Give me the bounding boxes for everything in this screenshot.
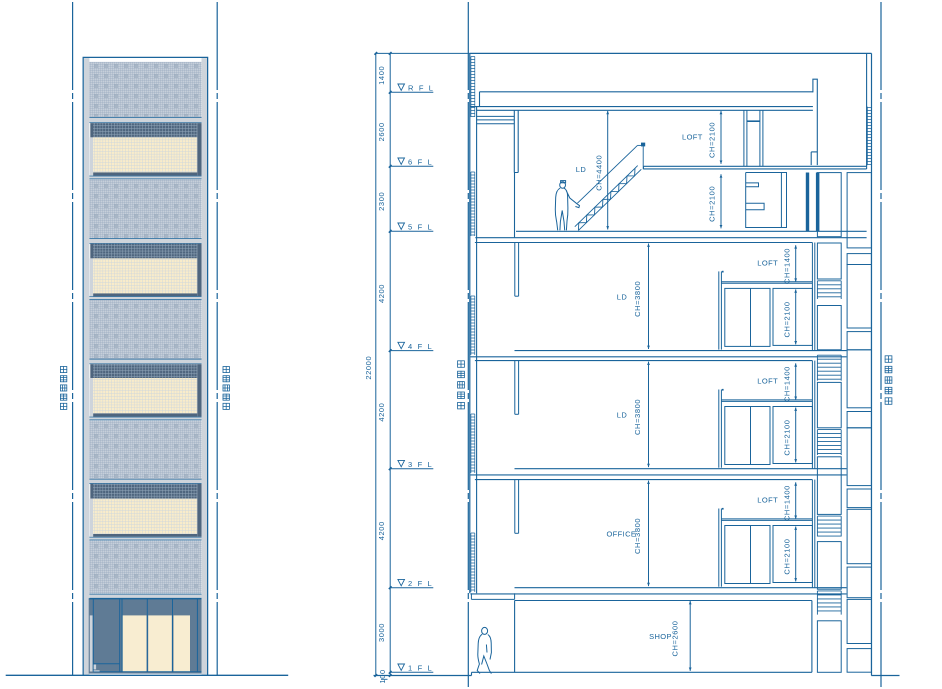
svg-text:1400: 1400 bbox=[377, 66, 386, 85]
svg-text:CH=2100: CH=2100 bbox=[782, 419, 791, 455]
svg-text:CH=2600: CH=2600 bbox=[670, 620, 679, 656]
svg-text:LOFT: LOFT bbox=[682, 133, 703, 142]
svg-text:LD: LD bbox=[576, 165, 587, 174]
svg-text:4200: 4200 bbox=[377, 403, 386, 422]
svg-text:LD: LD bbox=[617, 411, 628, 420]
svg-text:LOFT: LOFT bbox=[757, 496, 778, 505]
svg-text:4FL: 4FL bbox=[408, 342, 437, 351]
svg-text:5FL: 5FL bbox=[408, 223, 437, 232]
svg-text:CH=2100: CH=2100 bbox=[708, 186, 717, 222]
svg-text:4200: 4200 bbox=[377, 284, 386, 303]
svg-text:3000: 3000 bbox=[377, 623, 386, 642]
svg-text:CH=2100: CH=2100 bbox=[708, 122, 717, 158]
svg-text:2FL: 2FL bbox=[408, 579, 437, 588]
svg-text:3FL: 3FL bbox=[408, 460, 437, 469]
svg-text:100: 100 bbox=[378, 669, 387, 683]
svg-text:4200: 4200 bbox=[377, 521, 386, 540]
svg-text:CH=1400: CH=1400 bbox=[782, 366, 791, 402]
svg-text:CH=3800: CH=3800 bbox=[633, 518, 642, 554]
svg-text:CH=4400: CH=4400 bbox=[594, 155, 603, 191]
svg-text:LD: LD bbox=[617, 292, 628, 301]
svg-text:CH=2100: CH=2100 bbox=[782, 301, 791, 337]
svg-text:LOFT: LOFT bbox=[757, 258, 778, 267]
svg-text:CH=3800: CH=3800 bbox=[633, 399, 642, 435]
svg-text:1FL: 1FL bbox=[408, 664, 437, 673]
svg-text:RFL: RFL bbox=[408, 84, 438, 93]
svg-text:6FL: 6FL bbox=[408, 158, 437, 167]
svg-text:CH=1400: CH=1400 bbox=[782, 485, 791, 521]
svg-text:2300: 2300 bbox=[377, 192, 386, 211]
svg-text:CH=1400: CH=1400 bbox=[782, 248, 791, 284]
svg-text:LOFT: LOFT bbox=[757, 377, 778, 386]
svg-text:22000: 22000 bbox=[364, 356, 373, 380]
svg-text:CH=3800: CH=3800 bbox=[633, 281, 642, 317]
svg-text:OFFICE: OFFICE bbox=[606, 530, 636, 539]
svg-text:SHOP: SHOP bbox=[649, 632, 672, 641]
svg-text:CH=2100: CH=2100 bbox=[782, 538, 791, 574]
svg-text:2600: 2600 bbox=[377, 122, 386, 141]
